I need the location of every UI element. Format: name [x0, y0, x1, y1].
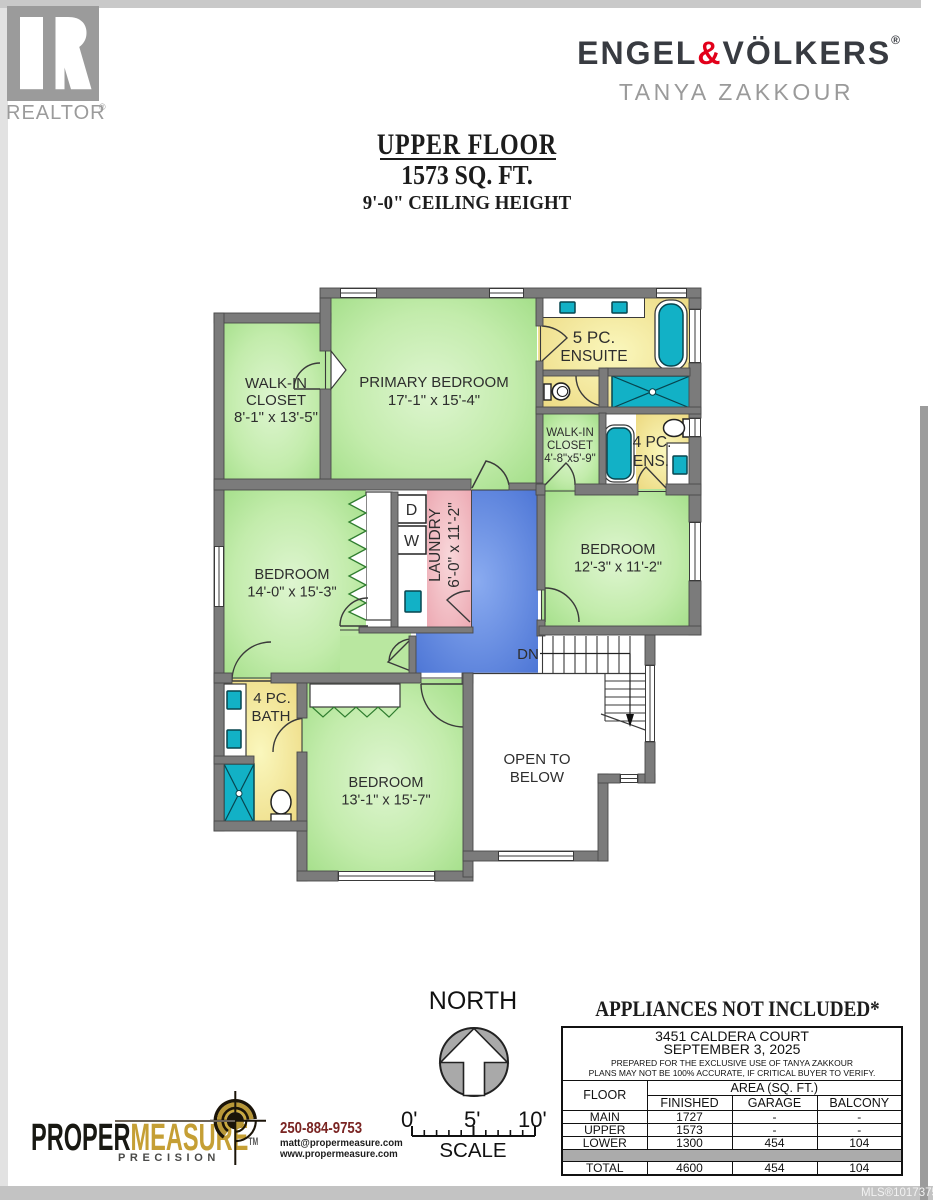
svg-text:12'-3" x 11'-2": 12'-3" x 11'-2" — [574, 560, 662, 576]
svg-text:ENSUITE: ENSUITE — [560, 348, 627, 365]
svg-text:OPEN TO: OPEN TO — [504, 751, 571, 768]
svg-text:DN: DN — [517, 646, 539, 663]
svg-text:BELOW: BELOW — [510, 769, 565, 786]
svg-text:5 PC.: 5 PC. — [573, 328, 616, 347]
svg-text:LAUNDRY: LAUNDRY — [427, 508, 444, 582]
svg-text:CLOSET: CLOSET — [246, 392, 306, 409]
svg-text:W: W — [404, 533, 420, 550]
svg-text:BATH: BATH — [252, 708, 291, 725]
svg-text:CLOSET: CLOSET — [547, 440, 593, 452]
svg-text:WALK-IN: WALK-IN — [546, 427, 594, 439]
svg-text:BEDROOM: BEDROOM — [581, 542, 656, 558]
svg-text:BEDROOM: BEDROOM — [255, 567, 330, 583]
svg-text:8'-1" x 13'-5": 8'-1" x 13'-5" — [234, 409, 318, 426]
svg-text:4'-8"x5'-9": 4'-8"x5'-9" — [544, 453, 596, 465]
svg-text:6'-0" x 11'-2": 6'-0" x 11'-2" — [446, 502, 463, 588]
svg-text:D: D — [406, 502, 418, 519]
svg-text:4 PC.: 4 PC. — [253, 690, 291, 707]
svg-text:BEDROOM: BEDROOM — [349, 775, 424, 791]
svg-text:17'-1" x 15'-4": 17'-1" x 15'-4" — [388, 392, 480, 409]
svg-text:14'-0" x 15'-3": 14'-0" x 15'-3" — [247, 585, 336, 601]
svg-text:4 PC.: 4 PC. — [633, 434, 672, 451]
svg-text:ENS.: ENS. — [633, 453, 669, 470]
svg-text:WALK-IN: WALK-IN — [245, 375, 307, 392]
svg-text:PRIMARY BEDROOM: PRIMARY BEDROOM — [359, 374, 508, 391]
svg-text:13'-1" x 15'-7": 13'-1" x 15'-7" — [341, 793, 430, 809]
